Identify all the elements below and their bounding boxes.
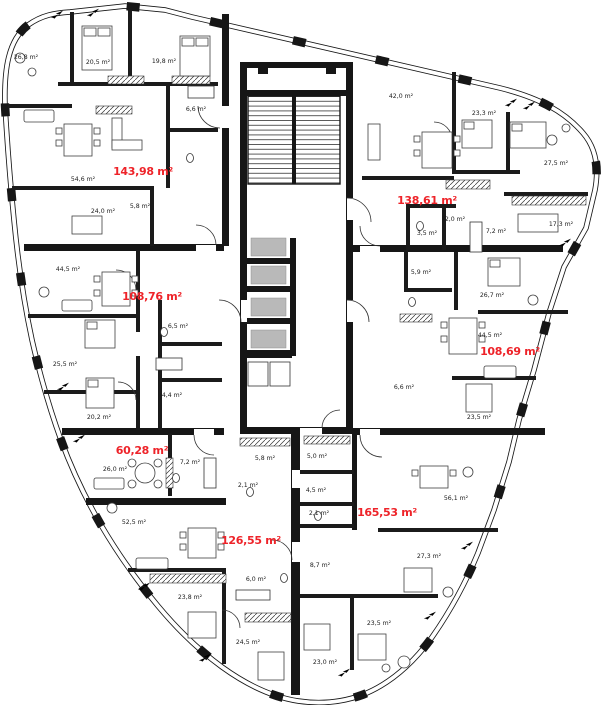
decor-circle: [39, 287, 49, 297]
bed: [86, 378, 114, 408]
room-area-label: 8,7 m²: [310, 562, 331, 569]
room-area-label: 44,5 m²: [478, 332, 503, 339]
elevator-1: [251, 238, 286, 256]
elevator-2: [251, 266, 286, 284]
apartment-area-label: 108,76 m²: [122, 290, 182, 303]
apartment-area-label: 138,61 m²: [397, 194, 457, 207]
room-area-label: 56,1 m²: [444, 495, 469, 502]
room-area-label: 4,5 m²: [306, 487, 327, 494]
apartment-area-label: 126,55 m²: [221, 534, 281, 547]
room-area-label: 26,0 m²: [103, 466, 128, 473]
toilet: [173, 474, 180, 483]
room-area-label: 42,0 m²: [389, 93, 414, 100]
toilet: [161, 328, 168, 337]
toilet: [281, 574, 288, 583]
decor-circle: [443, 587, 453, 597]
bed: [510, 122, 546, 148]
sofa: [94, 478, 124, 489]
room-area-label: 7,2 m²: [486, 228, 507, 235]
room-area-label: 27,3 m²: [417, 553, 442, 560]
room-area-label: 26,8 m²: [14, 54, 39, 61]
apartment-area-label: 165,53 m²: [357, 506, 417, 519]
room-area-label: 2,1 m²: [238, 482, 259, 489]
sofa: [484, 366, 516, 378]
room-area-label: 20,2 m²: [87, 414, 112, 421]
room-area-label: 19,8 m²: [152, 58, 177, 65]
room-area-label: 3,5 m²: [417, 230, 438, 237]
sofa: [24, 110, 54, 122]
decor-circle: [107, 503, 117, 513]
apartment-area-label: 108,69 m²: [480, 345, 540, 358]
bed: [180, 36, 210, 76]
decor-circle: [547, 135, 557, 145]
bed: [404, 568, 432, 592]
room-area-label: 6,5 m²: [168, 323, 189, 330]
room-area-label: 52,5 m²: [122, 519, 147, 526]
apartment-area-label: 60,28 m²: [116, 444, 169, 457]
room-area-label: 27,5 m²: [544, 160, 569, 167]
room-area-label: 4,4 m²: [162, 392, 183, 399]
bed: [358, 634, 386, 660]
sofa: [136, 558, 168, 569]
room-area-label: 26,7 m²: [480, 292, 505, 299]
decor-circle: [562, 124, 570, 132]
floor-plan-page: 26,8 m²20,5 m²19,8 m²6,6 m²54,6 m²24,0 m…: [0, 0, 602, 705]
room-area-label: 25,5 m²: [53, 361, 78, 368]
room-area-label: 6,6 m²: [394, 384, 415, 391]
toilet: [187, 154, 194, 163]
toilet: [409, 298, 416, 307]
decor-circle: [398, 656, 410, 668]
room-area-label: 6,6 m²: [186, 106, 207, 113]
room-area-label: 44,5 m²: [56, 266, 81, 273]
bed: [188, 612, 216, 638]
decor-circle: [463, 467, 473, 477]
elevator-3: [251, 298, 286, 316]
room-area-label: 17,3 m²: [549, 221, 574, 228]
room-area-label: 24,0 m²: [91, 208, 116, 215]
bed: [488, 258, 520, 286]
decor-circle: [528, 295, 538, 305]
room-area-label: 23,5 m²: [467, 414, 492, 421]
room-area-label: 5,8 m²: [130, 203, 151, 210]
bed: [304, 624, 330, 650]
bed: [72, 216, 102, 234]
room-area-label: 20,5 m²: [86, 59, 111, 66]
bed: [462, 120, 492, 148]
room-area-label: 23,0 m²: [313, 659, 338, 666]
room-area-label: 54,6 m²: [71, 176, 96, 183]
room-area-label: 6,0 m²: [246, 576, 267, 583]
floor-plan-canvas: 26,8 m²20,5 m²19,8 m²6,6 m²54,6 m²24,0 m…: [0, 0, 602, 705]
bathtub: [188, 86, 214, 98]
bathtub: [156, 358, 182, 370]
room-area-label: 23,3 m²: [472, 110, 497, 117]
room-area-label: 5,8 m²: [255, 455, 276, 462]
room-area-label: 5,9 m²: [411, 269, 432, 276]
elevator-4: [251, 330, 286, 348]
bed: [466, 384, 492, 412]
bed: [85, 320, 115, 348]
apartment-area-label: 143,98 m²: [113, 165, 173, 178]
room-area-label: 23,5 m²: [367, 620, 392, 627]
sofa: [62, 300, 92, 311]
room-area-label: 23,8 m²: [178, 594, 203, 601]
decor-circle: [28, 68, 36, 76]
bathtub: [470, 222, 482, 252]
bathtub: [236, 590, 270, 600]
room-area-label: 2,1 m²: [309, 510, 330, 517]
room-area-label: 24,5 m²: [236, 639, 261, 646]
bathtub: [204, 458, 216, 488]
kitchen-counter: [368, 124, 380, 160]
room-area-label: 5,0 m²: [307, 453, 328, 460]
room-area-label: 7,2 m²: [180, 459, 201, 466]
room-area-label: 2,0 m²: [445, 216, 466, 223]
bed: [258, 652, 284, 680]
decor-circle: [382, 664, 390, 672]
